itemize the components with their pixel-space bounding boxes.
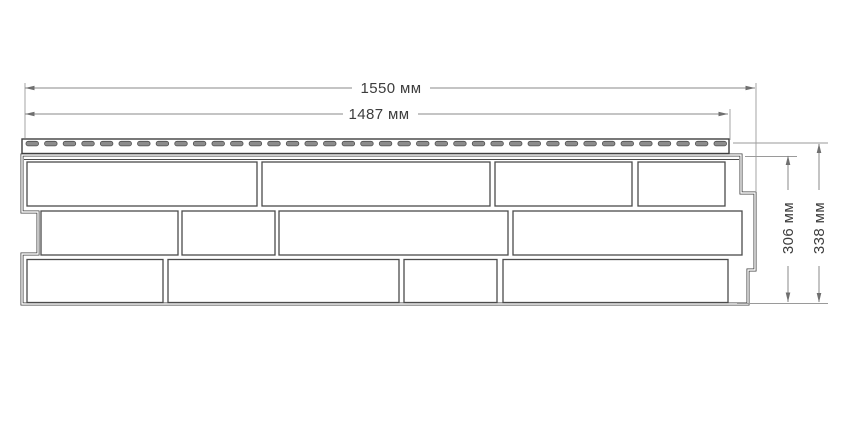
overall-width-label: 1550 мм [361,80,422,97]
nail-slot [249,141,262,146]
nail-slot [547,141,560,146]
brick [262,162,490,206]
nail-slot [398,141,411,146]
nail-slot [379,141,392,146]
arrow-left [25,112,35,117]
brick [503,260,728,303]
nail-slot [602,141,615,146]
nail-slot [286,141,299,146]
face-width-label: 1487 мм [349,106,410,123]
dimension-face-width: 1487 мм [25,106,730,140]
nail-slot [100,141,113,146]
arrow-up [817,144,822,154]
brick [513,211,742,255]
face-height-label: 306 мм [780,202,797,254]
nail-slot [26,141,39,146]
brick [279,211,508,255]
nail-slot [584,141,597,146]
arrow-down [786,293,791,303]
nail-slot [677,141,690,146]
nail-slot [491,141,504,146]
nail-slot [324,141,337,146]
nail-slot [416,141,429,146]
nail-slot [361,141,374,146]
nail-slot [231,141,244,146]
arrow-right [746,86,756,91]
brick [638,162,725,206]
brick [404,260,497,303]
nail-slot [342,141,355,146]
brick [495,162,632,206]
nail-slot [305,141,318,146]
nail-slot [119,141,132,146]
nail-slot [175,141,188,146]
nail-slot [193,141,206,146]
nail-slot [156,141,169,146]
nail-slot [472,141,485,146]
nail-slot [82,141,95,146]
nail-slot [435,141,448,146]
brick [27,162,257,206]
nail-slot [621,141,634,146]
arrow-left [25,86,35,91]
nail-slot [640,141,653,146]
brick [27,260,163,303]
nail-slot [63,141,76,146]
nail-slot [454,141,467,146]
nail-slot [714,141,727,146]
nail-slot [658,141,671,146]
brick [182,211,275,255]
nail-slot [212,141,225,146]
nail-slot [45,141,58,146]
nail-slot [138,141,151,146]
nail-slot [695,141,708,146]
arrow-down [817,293,822,303]
facade-panel-drawing: 1550 мм 1487 мм 306 мм [0,0,850,425]
diagram-canvas: 1550 мм 1487 мм 306 мм [0,0,850,425]
overall-height-label: 338 мм [811,202,828,254]
nail-slot [565,141,578,146]
brick [168,260,399,303]
brick [41,211,178,255]
nail-slot [509,141,521,146]
nail-slot [268,141,281,146]
arrow-right [719,112,729,117]
nail-slot [528,141,541,146]
panel-body [22,139,755,304]
